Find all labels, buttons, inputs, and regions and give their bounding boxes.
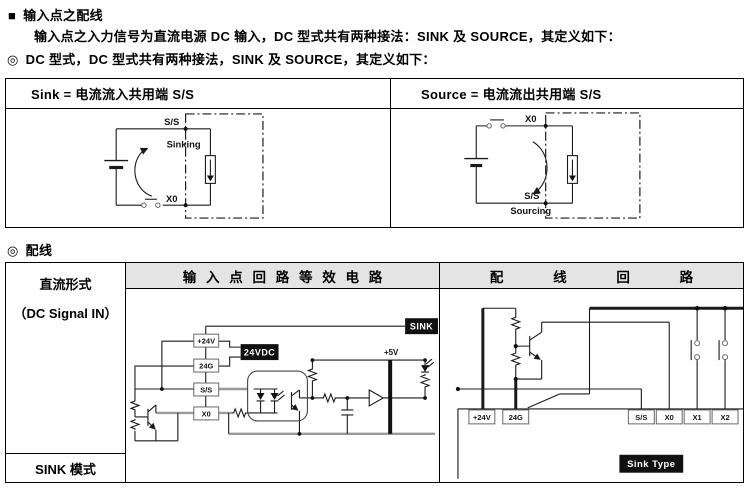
equiv-circuit-diagram: +24V 24G S/S X0 24VDC SINK +5V: [126, 289, 439, 482]
page-title-text: 输入点之配线: [23, 8, 103, 23]
junction-dot: [184, 127, 188, 131]
junction-dots: [456, 306, 728, 391]
switch-x1-icon: [695, 341, 700, 360]
power-wires: [483, 308, 743, 409]
terminal-label-x0: X0: [665, 413, 674, 422]
wiring-wires: [458, 308, 743, 478]
source-circuit-cell: X0 S/S Sourcing: [391, 109, 743, 227]
source-header-cell: Source = 电流流出共用端 S/S: [391, 79, 743, 109]
circle-bullet-icon: ◎: [7, 52, 19, 68]
terminal-label-ss: S/S: [200, 385, 212, 394]
source-bottom-terminal-label: S/S: [524, 190, 539, 201]
dc-signal-in-line: （DC Signal IN）: [6, 299, 125, 328]
dc-type-line: ◎DC 型式，DC 型式共有两种接法，SINK 及 SOURCE，其定义如下：: [7, 49, 436, 68]
terminal-label-24v: +24V: [473, 413, 491, 422]
circle-bullet-icon: ◎: [7, 243, 19, 259]
supply-24vdc-badge: 24VDC: [241, 344, 279, 360]
sink-mode-label: SINK 模式: [6, 453, 126, 482]
sink-bottom-terminal-label: X0: [166, 193, 178, 204]
plc-boundary-box: [546, 113, 640, 218]
terminal-label-24g: 24G: [509, 413, 523, 422]
terminal-label-x1: X1: [693, 413, 702, 422]
junction-dot: [544, 124, 548, 128]
terminal-label-ss: S/S: [635, 413, 647, 422]
sink-type-badge: Sink Type: [619, 455, 683, 473]
battery-icon: [464, 126, 488, 203]
source-top-terminal-label: X0: [525, 113, 537, 124]
sink-badge-label: SINK: [410, 322, 433, 332]
wiring-circuit-cell: +24V 24G S/S X0 X1 X2 Sink Type: [440, 289, 743, 482]
sink-circuit-cell: S/S Sinking X0: [6, 109, 391, 227]
manual-page: ■输入点之配线 输入点之入力信号为直流电源 DC 输入，DC 型式共有两种接法：…: [0, 0, 749, 489]
definition-table: Sink = 电流流入共用端 S/S Source = 电流流出共用端 S/S: [5, 78, 744, 228]
sourcing-label: Sourcing: [510, 205, 551, 216]
terminal-strip: +24V 24G S/S X0 X1 X2: [469, 410, 738, 424]
current-arrow-icon: [533, 142, 547, 194]
led-icon: [421, 365, 429, 372]
equiv-circuit-cell: +24V 24G S/S X0 24VDC SINK +5V: [126, 289, 440, 482]
dc-type-text: DC 型式，DC 型式共有两种接法，SINK 及 SOURCE，其定义如下：: [26, 52, 436, 67]
wiring-circuit-header: 配 线 回 路: [440, 263, 743, 289]
source-circuit-diagram: X0 S/S Sourcing: [391, 109, 743, 227]
switch-icon: [487, 120, 505, 128]
sink-type-label: Sink Type: [627, 459, 675, 470]
load-resistor-icon: [568, 156, 578, 184]
plc-boundary-box: [186, 114, 263, 218]
terminal-label-24g: 24G: [199, 362, 213, 371]
opto-led-icon: [271, 393, 279, 400]
rail-5v-label: +5V: [384, 348, 399, 357]
sinking-label: Sinking: [167, 139, 201, 150]
sink-circuit-diagram: S/S Sinking X0: [6, 109, 390, 227]
switch-icon: [142, 199, 160, 207]
wiring-section-heading: ◎配线: [7, 240, 52, 259]
opto-diode-icon: [257, 393, 265, 400]
sink-header-cell: Sink = 电流流入共用端 S/S: [6, 79, 391, 109]
wiring-heading-text: 配线: [26, 243, 53, 258]
load-resistor-icon: [205, 156, 215, 184]
current-arrow-icon: [135, 149, 152, 197]
page-title: ■输入点之配线: [8, 5, 103, 24]
supply-24vdc-label: 24VDC: [244, 348, 275, 358]
sink-badge: SINK: [405, 318, 438, 334]
wiring-circuit-diagram: +24V 24G S/S X0 X1 X2 Sink Type: [440, 289, 743, 482]
switch-x2-icon: [723, 341, 728, 360]
dc-form-line: 直流形式: [6, 270, 125, 299]
terminal-label-x0: X0: [202, 409, 211, 418]
sink-top-terminal-label: S/S: [164, 116, 179, 127]
intro-paragraph: 输入点之入力信号为直流电源 DC 输入，DC 型式共有两种接法：SINK 及 S…: [34, 26, 621, 45]
square-bullet-icon: ■: [8, 8, 16, 23]
dc-signal-label: 直流形式 （DC Signal IN）: [6, 263, 126, 453]
terminal-label-x2: X2: [720, 413, 729, 422]
buffer-icon: [369, 390, 383, 406]
wiring-table: 直流形式 （DC Signal IN） 输 入 点 回 路 等 效 电 路 配 …: [5, 262, 744, 483]
battery-icon: [104, 129, 128, 205]
junction-dot: [184, 203, 188, 207]
equiv-circuit-header: 输 入 点 回 路 等 效 电 路: [126, 263, 440, 289]
terminal-label-24v: +24V: [197, 337, 215, 346]
